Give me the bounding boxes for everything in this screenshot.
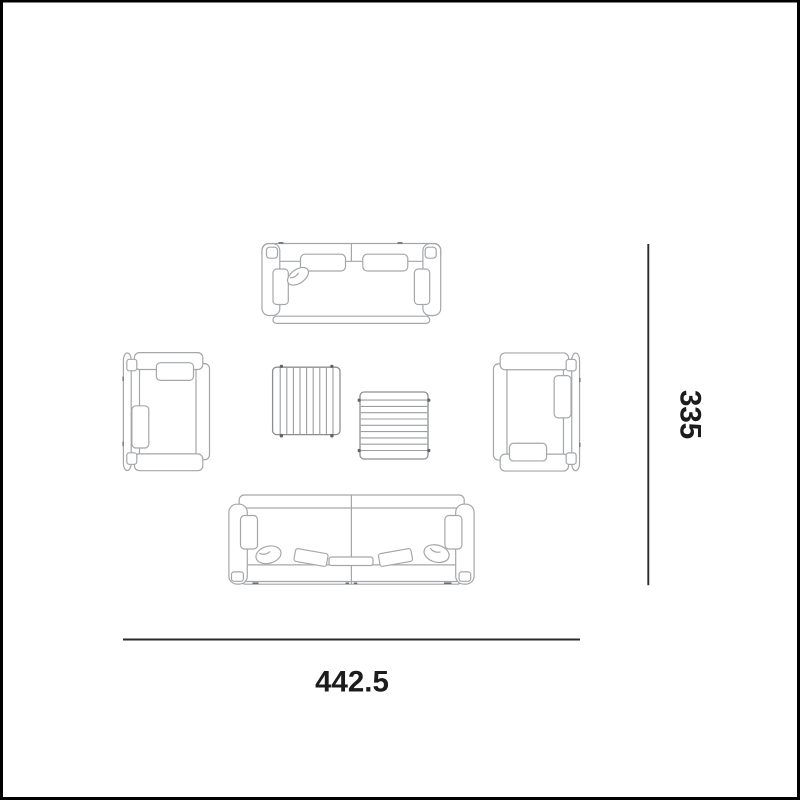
svg-text:335: 335 xyxy=(674,390,707,439)
svg-text:442.5: 442.5 xyxy=(315,666,389,699)
